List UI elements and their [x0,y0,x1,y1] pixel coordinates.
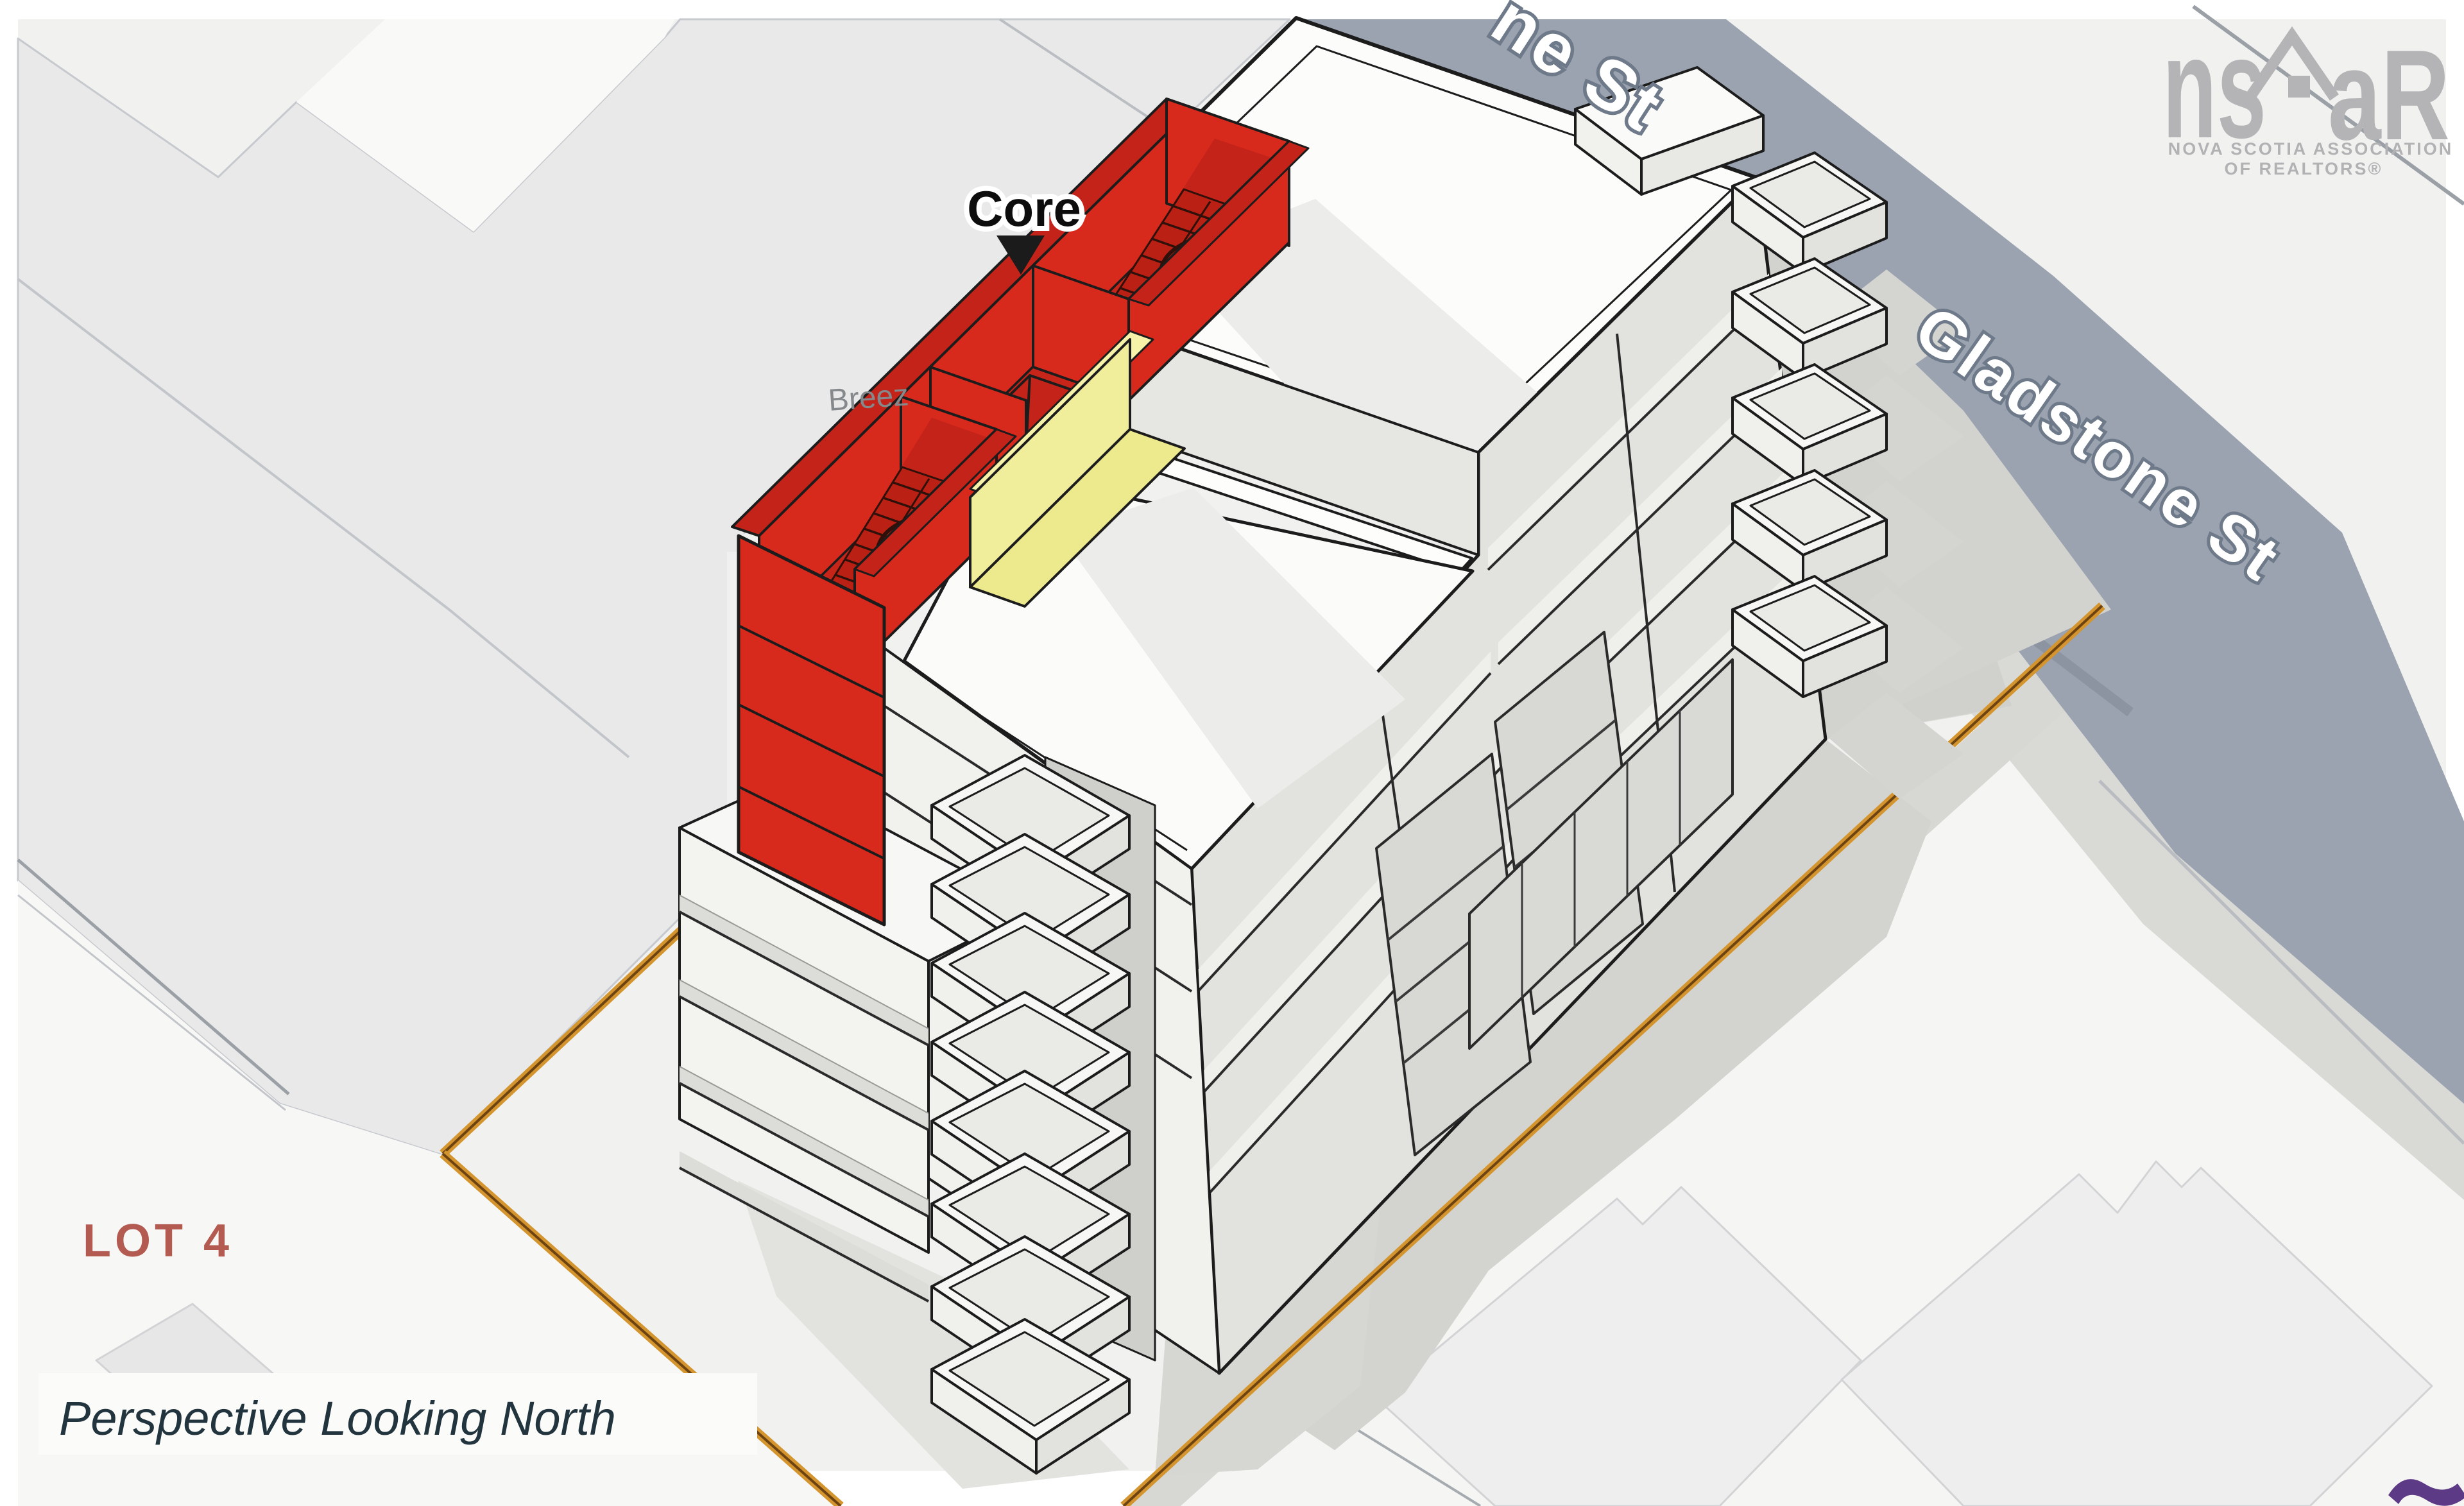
svg-text:Breez: Breez [827,378,910,418]
svg-text:Core: Core [967,180,1081,237]
svg-text:Perspective Looking North: Perspective Looking North [59,1392,616,1445]
svg-text:NOVA SCOTIA ASSOCIATION: NOVA SCOTIA ASSOCIATION [2168,139,2454,158]
svg-text:OF REALTORS®: OF REALTORS® [2225,159,2383,178]
svg-text:LOT 4: LOT 4 [83,1215,233,1267]
